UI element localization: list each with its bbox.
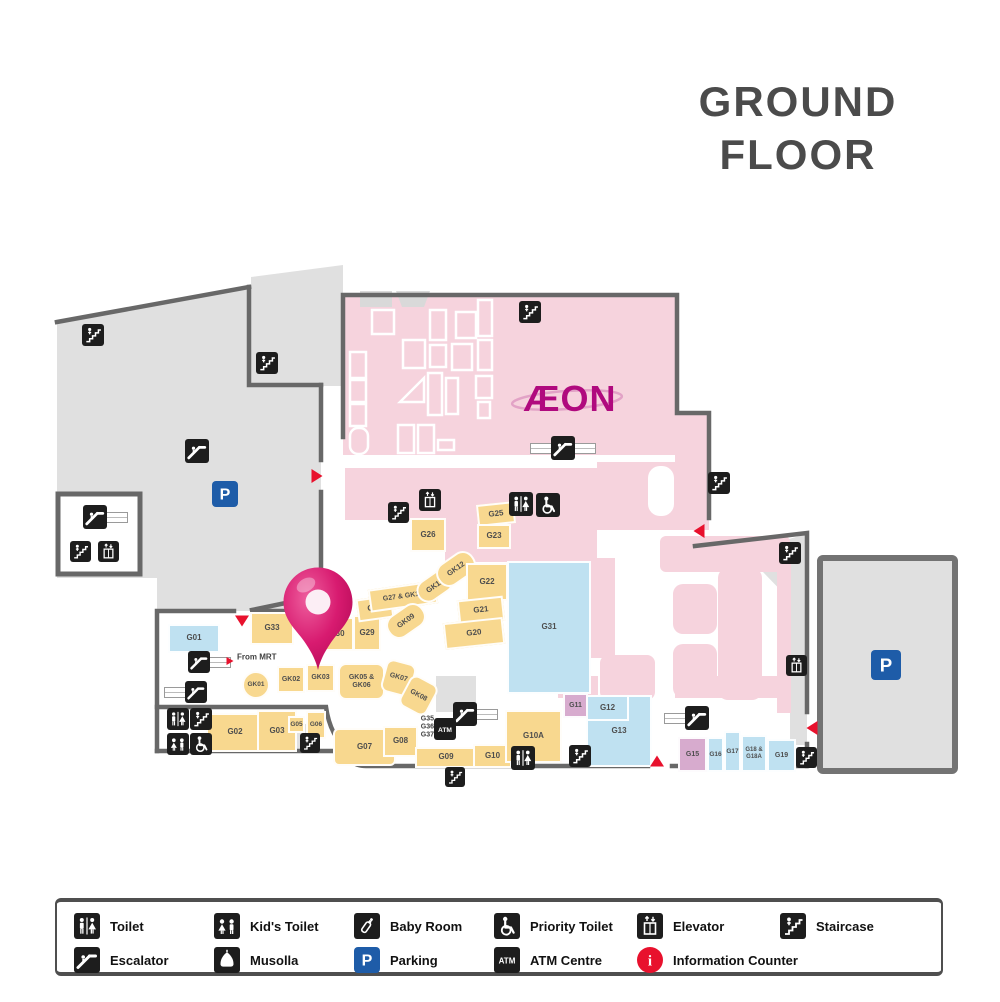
legend-label: Kid's Toilet — [250, 919, 319, 934]
entrance-arrow-right — [312, 469, 323, 483]
escalator-strip — [475, 709, 498, 720]
unit-label: G20 — [466, 628, 482, 638]
unit-label: G33 — [264, 624, 279, 633]
kids-toilet-icon — [214, 913, 240, 939]
map-label-g35: G35 — [421, 716, 434, 723]
escalator-icon — [185, 439, 209, 463]
unit-G05[interactable]: G05 — [288, 716, 305, 733]
unit-label: G31 — [541, 623, 556, 632]
staircase-icon — [82, 324, 104, 346]
unit-label: G29 — [359, 629, 374, 638]
unit-label: G25 — [488, 509, 504, 519]
svg-text:ATM: ATM — [499, 957, 516, 966]
legend-item-baby-room: Baby Room — [354, 913, 462, 939]
unit-G01[interactable]: G01 — [168, 624, 220, 653]
escalator-strip — [164, 687, 187, 698]
unit-label: G22 — [479, 578, 494, 587]
legend-item-priority-toilet: Priority Toilet — [494, 913, 613, 939]
toilet-icon — [167, 708, 189, 730]
aeon-logo-text: ÆON — [495, 378, 645, 420]
priority-toilet-icon — [494, 913, 520, 939]
svg-text:ATM: ATM — [438, 727, 452, 734]
unit-G15[interactable]: G15 — [678, 737, 707, 772]
priority-toilet-icon — [190, 733, 212, 755]
baby-room-icon — [354, 913, 380, 939]
aeon-logo: ÆON — [495, 372, 645, 428]
unit-label: G07 — [357, 743, 372, 752]
staircase-icon — [569, 745, 591, 767]
unit-G08[interactable]: G08 — [383, 726, 418, 757]
map-label-g37: G37 — [421, 732, 434, 739]
staircase-icon — [780, 913, 806, 939]
escalator-icon — [185, 681, 207, 703]
unit-label: G10A — [523, 732, 544, 741]
svg-text:P: P — [880, 654, 892, 675]
staircase-icon — [388, 502, 409, 523]
svg-text:P: P — [220, 487, 231, 504]
entrance-arrow-up — [650, 756, 664, 767]
legend-label: Priority Toilet — [530, 919, 613, 934]
legend-label: Parking — [390, 953, 438, 968]
unit-G23[interactable]: G23 — [477, 524, 511, 549]
unit-label: GK12 — [446, 560, 467, 578]
unit-label: GK07 — [389, 672, 409, 684]
elevator-icon — [637, 913, 663, 939]
legend-item-musolla: Musolla — [214, 947, 298, 973]
staircase-icon — [190, 708, 212, 730]
svg-text:P: P — [362, 953, 373, 970]
unit-G17[interactable]: G17 — [724, 731, 741, 772]
legend-item-escalator: Escalator — [74, 947, 169, 973]
staircase-icon — [519, 301, 541, 323]
map-label-g36: G36 — [421, 724, 434, 731]
legend-label: Escalator — [110, 953, 169, 968]
legend-item-info: iInformation Counter — [637, 947, 798, 973]
toilet-icon — [509, 492, 533, 516]
legend-item-staircase: Staircase — [780, 913, 874, 939]
unit-label: G08 — [393, 737, 408, 746]
map-label-from-mrt: From MRT — [237, 653, 277, 662]
staircase-icon — [779, 542, 801, 564]
unit-label: G16 — [709, 751, 721, 758]
escalator-icon — [685, 706, 709, 730]
toilet-icon — [511, 746, 535, 770]
legend-item-atm: ATMATM Centre — [494, 947, 602, 973]
entrance-arrow-left — [807, 721, 818, 735]
escalator-icon — [188, 651, 210, 673]
legend-label: Information Counter — [673, 953, 798, 968]
unit-label: G23 — [486, 532, 501, 541]
unit-label: G09 — [438, 753, 453, 762]
unit-label: G06 — [310, 721, 322, 728]
unit-G11[interactable]: G11 — [563, 693, 588, 718]
elevator-icon — [786, 655, 807, 676]
unit-G16[interactable]: G16 — [707, 737, 724, 772]
elevator-icon — [98, 541, 119, 562]
unit-label: G18 & G18A — [745, 747, 762, 760]
staircase-icon — [708, 472, 730, 494]
legend-label: ATM Centre — [530, 953, 602, 968]
unit-G02[interactable]: G02 — [206, 713, 264, 752]
unit-label: G03 — [269, 727, 284, 736]
escalator-icon — [83, 505, 107, 529]
staircase-icon — [445, 767, 465, 787]
unit-label: G15 — [686, 751, 699, 759]
staircase-icon — [70, 541, 91, 562]
svg-text:i: i — [648, 954, 652, 970]
unit-label: G01 — [186, 634, 201, 643]
escalator-strip — [530, 443, 553, 454]
unit-G31[interactable]: G31 — [507, 561, 591, 694]
staircase-icon — [796, 747, 817, 768]
entrance-arrow-down — [235, 616, 249, 627]
legend-label: Toilet — [110, 919, 144, 934]
unit-label: G21 — [473, 605, 489, 615]
legend-item-kids-toilet: Kid's Toilet — [214, 913, 319, 939]
parking-icon: P — [212, 481, 238, 507]
unit-label: G13 — [611, 727, 626, 736]
legend-item-parking: PParking — [354, 947, 438, 973]
unit-label: G26 — [420, 531, 435, 540]
unit-G26[interactable]: G26 — [410, 518, 446, 552]
unit-label: G02 — [227, 728, 242, 737]
unit-label: G10 — [485, 752, 500, 761]
kids-toilet-icon — [167, 733, 189, 755]
parking-icon: P — [871, 650, 901, 680]
staircase-icon — [256, 352, 278, 374]
info-icon: i — [637, 947, 663, 973]
musolla-icon — [214, 947, 240, 973]
unit-label: G19 — [775, 752, 788, 760]
entrance-arrow-right — [227, 657, 234, 665]
unit-GK01[interactable]: GK01 — [242, 671, 270, 699]
unit-label: GK09 — [396, 612, 417, 630]
unit-label: G12 — [600, 704, 615, 713]
atm-icon: ATM — [434, 718, 456, 740]
unit-label: GK02 — [282, 676, 300, 684]
unit-label: G17 — [726, 748, 738, 755]
escalator-strip — [573, 443, 596, 454]
location-pin — [280, 564, 360, 676]
unit-G18-G18A[interactable]: G18 & G18A — [741, 735, 767, 772]
legend-label: Baby Room — [390, 919, 462, 934]
entrance-arrow-left — [694, 524, 705, 538]
unit-G12[interactable]: G12 — [586, 695, 629, 721]
legend-item-elevator: Elevator — [637, 913, 724, 939]
legend-item-toilet: Toilet — [74, 913, 144, 939]
legend: ToiletKid's ToiletBaby RoomPriority Toil… — [55, 898, 943, 976]
legend-label: Musolla — [250, 953, 298, 968]
unit-label: G11 — [569, 702, 582, 710]
floor-plan-base — [0, 0, 1000, 1002]
priority-toilet-icon — [536, 493, 560, 517]
unit-label: GK05 & GK06 — [349, 674, 374, 689]
parking-icon: P — [354, 947, 380, 973]
unit-G09[interactable]: G09 — [415, 747, 477, 768]
atm-icon: ATM — [494, 947, 520, 973]
unit-G19[interactable]: G19 — [767, 739, 796, 772]
floor-plan-page: GROUND FLOOR — [0, 0, 1000, 1002]
staircase-icon — [300, 733, 320, 753]
legend-label: Staircase — [816, 919, 874, 934]
unit-label: GK08 — [409, 688, 429, 703]
unit-label: G05 — [290, 721, 302, 728]
toilet-icon — [74, 913, 100, 939]
escalator-icon — [74, 947, 100, 973]
legend-label: Elevator — [673, 919, 724, 934]
elevator-icon — [419, 489, 441, 511]
escalator-icon — [453, 702, 477, 726]
unit-label: GK01 — [248, 681, 265, 688]
escalator-icon — [551, 436, 575, 460]
escalator-strip — [664, 713, 687, 724]
escalator-strip — [105, 512, 128, 523]
